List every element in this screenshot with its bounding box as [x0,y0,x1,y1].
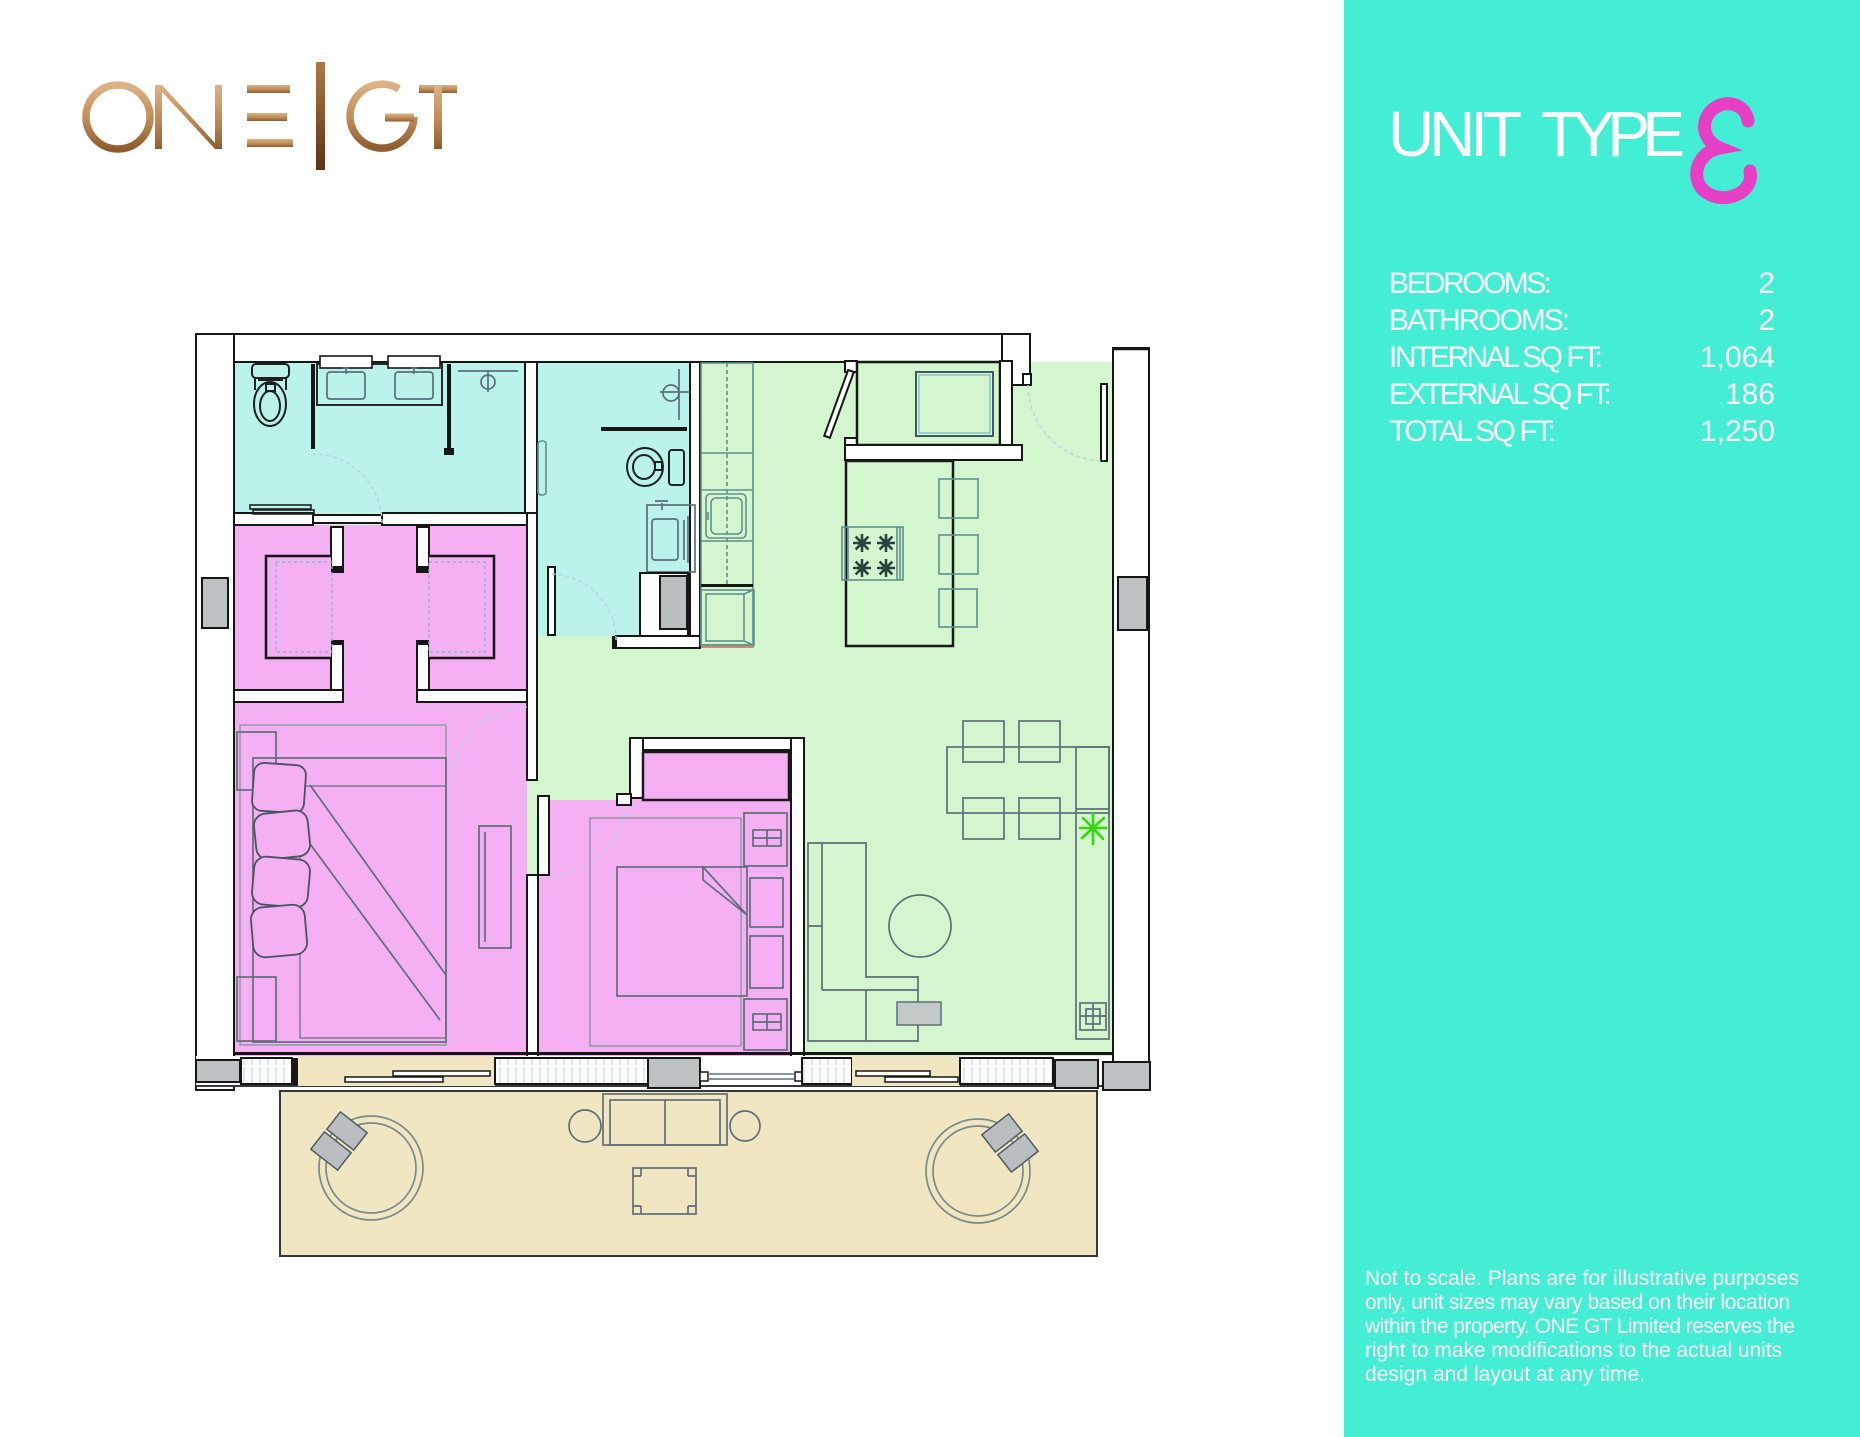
svg-text:EXTERNAL SQ FT:: EXTERNAL SQ FT: [1389,378,1612,411]
svg-text:2: 2 [1758,267,1775,300]
svg-text:1,064: 1,064 [1700,341,1775,374]
svg-text:UNIT: UNIT [1388,98,1522,170]
svg-text:BEDROOMS:: BEDROOMS: [1389,267,1552,300]
svg-text:BATHROOMS:: BATHROOMS: [1389,304,1570,337]
svg-text:186: 186 [1725,378,1775,411]
svg-text:right to make modifications to: right to make modifications to the actua… [1365,1339,1782,1362]
svg-text:within the property. ONE GT Li: within the property. ONE GT Limited rese… [1364,1315,1795,1338]
svg-text:Not to scale. Plans are for il: Not to scale. Plans are for illustrative… [1365,1267,1799,1290]
svg-text:2: 2 [1758,304,1775,337]
svg-text:design and layout at any time.: design and layout at any time. [1365,1363,1645,1386]
svg-text:TYPE: TYPE [1541,98,1685,170]
svg-text:only, unit sizes may vary base: only, unit sizes may vary based on their… [1365,1291,1790,1314]
svg-text:1,250: 1,250 [1700,415,1775,448]
svg-text:TOTAL SQ FT:: TOTAL SQ FT: [1389,415,1556,448]
svg-text:INTERNAL SQ FT:: INTERNAL SQ FT: [1389,341,1603,374]
